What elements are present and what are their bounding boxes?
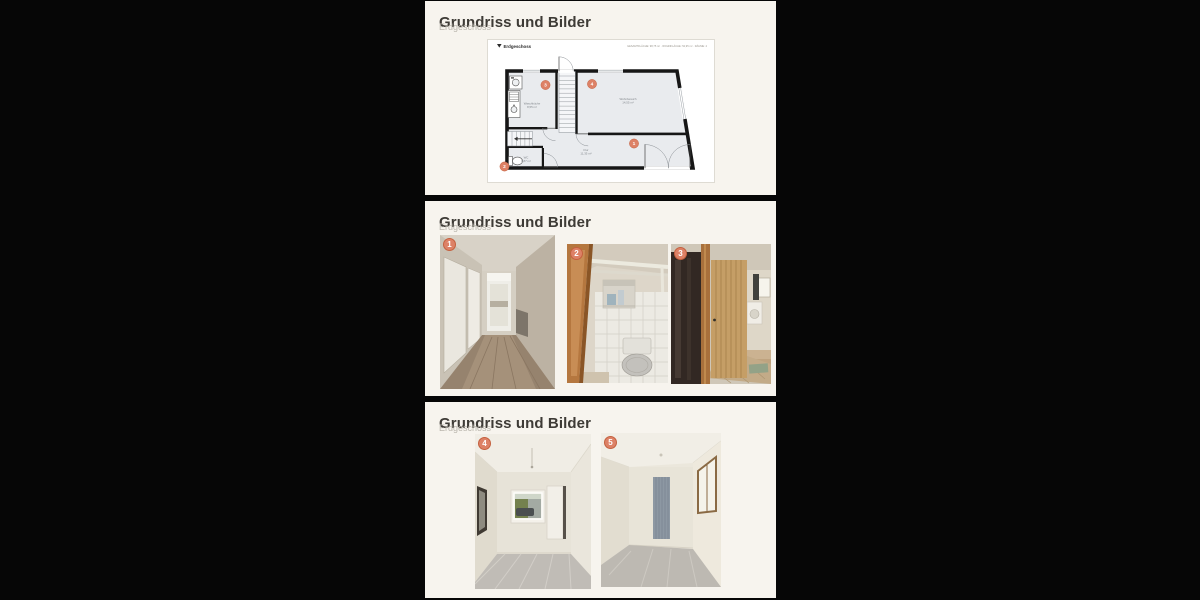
photo-number-badge: 4 bbox=[478, 437, 491, 450]
section-subtitle: Erdgeschoss bbox=[439, 222, 491, 232]
kitchenette-icon bbox=[508, 91, 520, 118]
plan-marker-3: 3 bbox=[544, 83, 547, 89]
photo-number-badge: 3 bbox=[674, 247, 687, 260]
photo-utility-room: 3 bbox=[671, 244, 771, 384]
entry-steps-icon bbox=[508, 132, 533, 147]
photo-number-badge: 5 bbox=[604, 436, 617, 449]
page-background: Grundriss und Bilder Erdgeschoss Erdgesc… bbox=[0, 0, 1200, 600]
section-photos-card-2: Grundriss und Bilder Erdgeschoss bbox=[425, 402, 776, 598]
section-floorplan-card: Grundriss und Bilder Erdgeschoss Erdgesc… bbox=[425, 1, 776, 195]
plan-floor-area bbox=[507, 71, 693, 168]
room-area-label: 11,35 m² bbox=[580, 152, 591, 156]
stairs-icon bbox=[559, 72, 575, 133]
photo-number-badge: 2 bbox=[570, 247, 583, 260]
photo-hallway: 1 bbox=[440, 235, 555, 389]
washing-machine-icon bbox=[510, 76, 523, 89]
floorplan-level-label: Erdgeschoss bbox=[504, 44, 532, 49]
room-area-label: 8,55 m² bbox=[527, 105, 537, 109]
triangle-down-icon bbox=[497, 44, 502, 48]
floorplan-image: Erdgeschoss GESAMTFLÄCHE: 98,75 m² · WOH… bbox=[487, 39, 715, 183]
photo-room-curtain: 5 bbox=[601, 433, 721, 587]
section-photos-card-1: Grundriss und Bilder Erdgeschoss bbox=[425, 201, 776, 396]
plan-marker-4: 4 bbox=[591, 82, 594, 88]
photo-room-window: 4 bbox=[475, 434, 591, 589]
section-subtitle: Erdgeschoss bbox=[439, 22, 491, 32]
floorplan-stats: GESAMTFLÄCHE: 98,75 m² · WOHNFLÄCHE: 52,… bbox=[627, 44, 707, 48]
floorplan-svg: Erdgeschoss GESAMTFLÄCHE: 98,75 m² · WOH… bbox=[488, 40, 714, 182]
room-area-label: 0,87 m² bbox=[521, 159, 531, 163]
room-area-label: 14,55 m² bbox=[622, 101, 633, 105]
photo-number-badge: 1 bbox=[443, 238, 456, 251]
photo-wc: 2 bbox=[567, 244, 668, 383]
plan-marker-2: 2 bbox=[503, 164, 506, 170]
section-subtitle: Erdgeschoss bbox=[439, 423, 491, 433]
plan-marker-1: 1 bbox=[633, 141, 636, 147]
